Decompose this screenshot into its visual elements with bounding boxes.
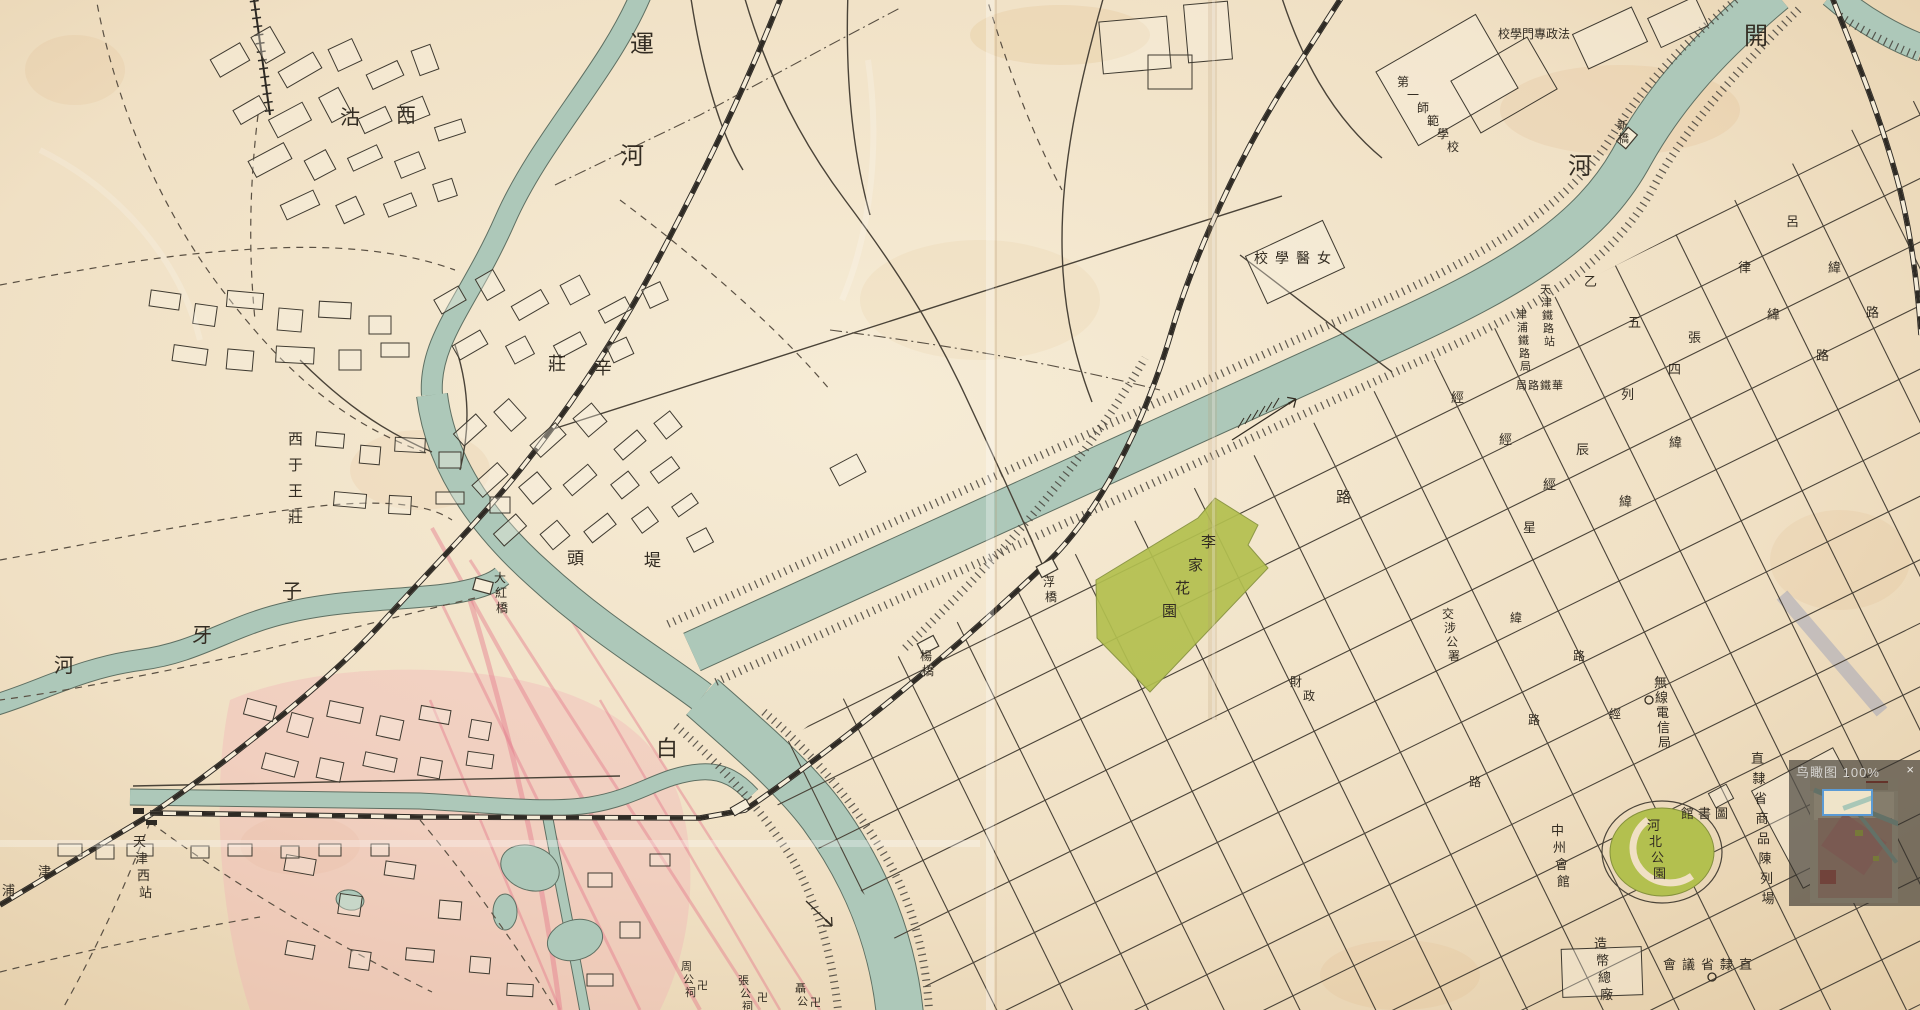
map-label: 局 bbox=[1520, 360, 1531, 373]
map-label: 鐵 bbox=[1518, 333, 1529, 347]
map-label: 女 bbox=[1317, 250, 1331, 267]
map-label: 路 bbox=[1519, 347, 1530, 360]
map-label: 張 bbox=[738, 974, 749, 987]
map-label: 門 bbox=[1522, 27, 1534, 41]
map-label: 律 bbox=[1738, 260, 1751, 275]
map-label: 莊 bbox=[548, 354, 566, 374]
map-label: 頭 bbox=[567, 549, 584, 568]
map-label: 卍 bbox=[810, 996, 821, 1009]
map-label: 開 bbox=[1744, 24, 1768, 50]
map-label: 站 bbox=[1544, 334, 1555, 348]
map-label: 橋 bbox=[922, 664, 934, 678]
map-label: 公 bbox=[683, 974, 694, 986]
map-label: 津 bbox=[135, 851, 148, 866]
map-label: 河 bbox=[1647, 818, 1660, 833]
map-label: 署 bbox=[1448, 649, 1460, 663]
map-label: 列 bbox=[1621, 387, 1634, 402]
map-label: 站 bbox=[139, 885, 152, 900]
map-label: 公 bbox=[797, 996, 808, 1008]
map-label: 子 bbox=[282, 581, 302, 603]
map-label: 花 bbox=[1175, 580, 1190, 597]
map-label: 路 bbox=[1573, 648, 1585, 663]
map-label: 河 bbox=[54, 654, 74, 677]
map-label: 路 bbox=[1543, 322, 1554, 335]
map-label: 信 bbox=[1657, 720, 1670, 735]
map-label: 四 bbox=[1668, 362, 1681, 377]
map-label: 沽 bbox=[340, 106, 360, 129]
map-label: 周 bbox=[681, 960, 692, 973]
map-label: 津 bbox=[38, 864, 51, 879]
map-label: 局 bbox=[1658, 735, 1671, 750]
map-label: 學 bbox=[1437, 127, 1449, 141]
map-label: 緯 bbox=[1510, 610, 1522, 625]
map-label: 橋 bbox=[496, 601, 508, 615]
map-label: 路 bbox=[1528, 712, 1540, 727]
map-label: 白 bbox=[656, 736, 678, 761]
map-label: 祠 bbox=[685, 986, 696, 999]
map-label: 校 bbox=[1498, 26, 1510, 41]
map-label: 總 bbox=[1598, 970, 1611, 985]
map-label: 牙 bbox=[192, 625, 212, 647]
map-label: 緯 bbox=[1669, 435, 1682, 450]
map-label: 浦 bbox=[2, 883, 15, 898]
map-label: 場 bbox=[1762, 891, 1775, 906]
map-label: 線 bbox=[1655, 690, 1668, 705]
map-label: 交 bbox=[1442, 606, 1454, 621]
map-label: 品 bbox=[1757, 831, 1770, 846]
map-label: 財 bbox=[1290, 674, 1302, 689]
map-label: 法 bbox=[1558, 27, 1570, 41]
map-label: 學 bbox=[1510, 27, 1522, 41]
map-label: 會 bbox=[1663, 957, 1676, 972]
map-label: 廠 bbox=[1600, 987, 1613, 1002]
map-label: 路 bbox=[1866, 305, 1879, 320]
navigator-thumbnail[interactable] bbox=[1810, 778, 1898, 903]
map-label: 無 bbox=[1654, 675, 1667, 690]
map-label: 浦 bbox=[1517, 321, 1528, 334]
map-label: 華 bbox=[1552, 379, 1563, 392]
map-label: 緯 bbox=[1828, 260, 1841, 275]
birdseye-navigator-panel: 鸟瞰图 100% × bbox=[1789, 760, 1920, 906]
map-label: 楊 bbox=[920, 648, 932, 663]
map-label: 津 bbox=[1516, 308, 1527, 321]
map-label: 辛 bbox=[594, 358, 612, 378]
close-icon[interactable]: × bbox=[1906, 762, 1914, 777]
map-label: 幣 bbox=[1596, 953, 1609, 968]
map-label: 辰 bbox=[1576, 442, 1589, 457]
map-label: 省 bbox=[1701, 957, 1714, 972]
map-label: 祠 bbox=[742, 1000, 753, 1010]
map-label: 隸 bbox=[1720, 957, 1733, 972]
map-label: 王 bbox=[288, 484, 303, 500]
map-label: 會 bbox=[1555, 857, 1568, 872]
map-label: 館 bbox=[1681, 806, 1694, 821]
map-label: 校 bbox=[1254, 250, 1268, 267]
map-label: 館 bbox=[1557, 874, 1570, 889]
map-label: 經 bbox=[1609, 707, 1621, 721]
map-label: 卍 bbox=[757, 991, 768, 1004]
map-label: 鐵 bbox=[1542, 308, 1553, 322]
map-label: 書 bbox=[1698, 806, 1711, 821]
map-label: 園 bbox=[1653, 866, 1666, 881]
map-label: 莊 bbox=[288, 509, 303, 526]
map-label: 路 bbox=[1469, 774, 1481, 789]
map-label: 河 bbox=[1568, 153, 1592, 180]
map-label: 路 bbox=[1816, 348, 1829, 363]
map-label: 浮 bbox=[1043, 575, 1055, 589]
viewport-river-hint bbox=[1842, 792, 1873, 810]
map-label: 公 bbox=[1651, 850, 1664, 865]
map-label: 大 bbox=[494, 571, 506, 585]
map-label: 李 bbox=[1201, 534, 1216, 551]
map-label: 津 bbox=[1541, 296, 1552, 309]
map-label: 政 bbox=[1303, 689, 1315, 703]
map-label: 經 bbox=[1451, 390, 1464, 405]
map-label: 卍 bbox=[697, 979, 708, 992]
map-label: 省 bbox=[1754, 791, 1767, 806]
map-label: 緯 bbox=[1619, 494, 1632, 509]
map-label: 涉 bbox=[1444, 621, 1456, 635]
map-label: 醫 bbox=[1296, 251, 1310, 267]
map-label: 師 bbox=[1417, 101, 1429, 115]
map-label: 學 bbox=[1275, 251, 1289, 267]
map-label: 河 bbox=[620, 143, 644, 170]
map-label: 紅 bbox=[495, 586, 507, 600]
map-label: 五 bbox=[1628, 315, 1641, 330]
map-label: 校 bbox=[1447, 139, 1459, 154]
map-label: 路 bbox=[1528, 379, 1539, 392]
map-label: 于 bbox=[288, 458, 303, 474]
navigator-viewport-rect[interactable] bbox=[1822, 789, 1873, 816]
map-label: 圖 bbox=[1715, 806, 1728, 821]
map-label: 呂 bbox=[1786, 214, 1799, 229]
map-label: 緯 bbox=[1767, 307, 1780, 322]
map-label: 乙 bbox=[1584, 274, 1597, 289]
map-label: 直 bbox=[1739, 957, 1752, 972]
map-label: 張 bbox=[1688, 330, 1701, 345]
map-label: 政 bbox=[1546, 27, 1558, 41]
map-label: 西 bbox=[396, 105, 416, 127]
map-label: 橋 bbox=[1045, 590, 1057, 604]
map-label: 直 bbox=[1751, 751, 1764, 766]
map-label: 陳 bbox=[1759, 851, 1772, 866]
map-label: 堤 bbox=[644, 551, 661, 570]
map-label: 西 bbox=[137, 868, 150, 883]
map-label: 公 bbox=[740, 988, 751, 1000]
map-label: 範 bbox=[1427, 113, 1439, 128]
map-label: 商 bbox=[1756, 811, 1769, 826]
map-label: 造 bbox=[1594, 936, 1607, 951]
map-label: 一 bbox=[1407, 88, 1419, 102]
map-label: 園 bbox=[1162, 603, 1177, 620]
map-label: 西 bbox=[288, 432, 303, 448]
map-label: 運 bbox=[630, 32, 654, 58]
map-label: 專 bbox=[1534, 27, 1546, 41]
map-label: 家 bbox=[1188, 557, 1203, 574]
map-label: 天 bbox=[133, 834, 146, 849]
map-label: 新 bbox=[1617, 118, 1628, 132]
map-label: 橋 bbox=[1618, 131, 1629, 145]
image-viewer-stage: 運河沽西辛莊西于王莊子牙河大紅橋頭堤白浮橋楊橋李家花園校學醫女校學門專政法第一師… bbox=[0, 0, 1920, 1010]
map-label: 北 bbox=[1649, 834, 1662, 849]
map-label: 隸 bbox=[1753, 771, 1766, 786]
map-label: 議 bbox=[1682, 957, 1695, 972]
map-label: 經 bbox=[1543, 477, 1556, 492]
map-label: 聶 bbox=[795, 982, 806, 995]
map-label: 星 bbox=[1523, 520, 1536, 535]
map-label: 局 bbox=[1516, 379, 1527, 392]
map-label: 電 bbox=[1656, 705, 1669, 720]
map-label: 中 bbox=[1551, 823, 1564, 838]
map-label: 公 bbox=[1446, 635, 1458, 649]
map-label: 經 bbox=[1499, 432, 1512, 447]
map-label: 列 bbox=[1760, 871, 1773, 886]
map-label: 州 bbox=[1553, 840, 1566, 855]
map-label: 第 bbox=[1397, 75, 1409, 89]
map-label: 鐵 bbox=[1540, 378, 1551, 392]
map-label: 路 bbox=[1336, 489, 1351, 506]
map-label: 天 bbox=[1540, 284, 1551, 296]
historical-tianjin-map[interactable]: 運河沽西辛莊西于王莊子牙河大紅橋頭堤白浮橋楊橋李家花園校學醫女校學門專政法第一師… bbox=[0, 0, 1920, 1010]
